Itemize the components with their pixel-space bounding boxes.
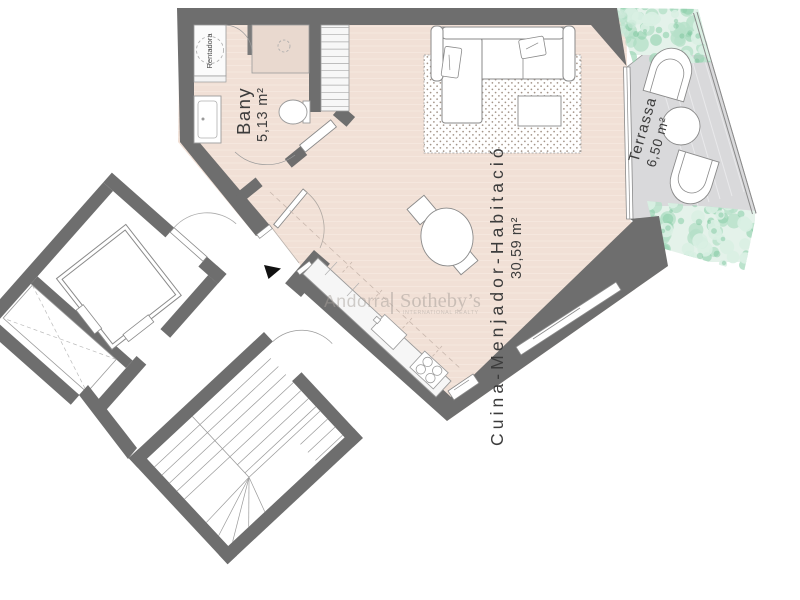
- svg-text:Cuina-Menjador-Habitació: Cuina-Menjador-Habitació: [487, 144, 507, 446]
- svg-text:INTERNATIONAL REALTY: INTERNATIONAL REALTY: [403, 310, 479, 316]
- svg-text:5,13 m²: 5,13 m²: [255, 87, 271, 142]
- svg-text:Sotheby’s: Sotheby’s: [400, 290, 481, 312]
- svg-text:Rentadora: Rentadora: [205, 33, 214, 69]
- svg-text:Andorra: Andorra: [324, 291, 390, 311]
- svg-text:|: |: [389, 288, 395, 314]
- svg-text:30,59 m²: 30,59 m²: [509, 217, 525, 279]
- svg-text:Bany: Bany: [233, 87, 254, 135]
